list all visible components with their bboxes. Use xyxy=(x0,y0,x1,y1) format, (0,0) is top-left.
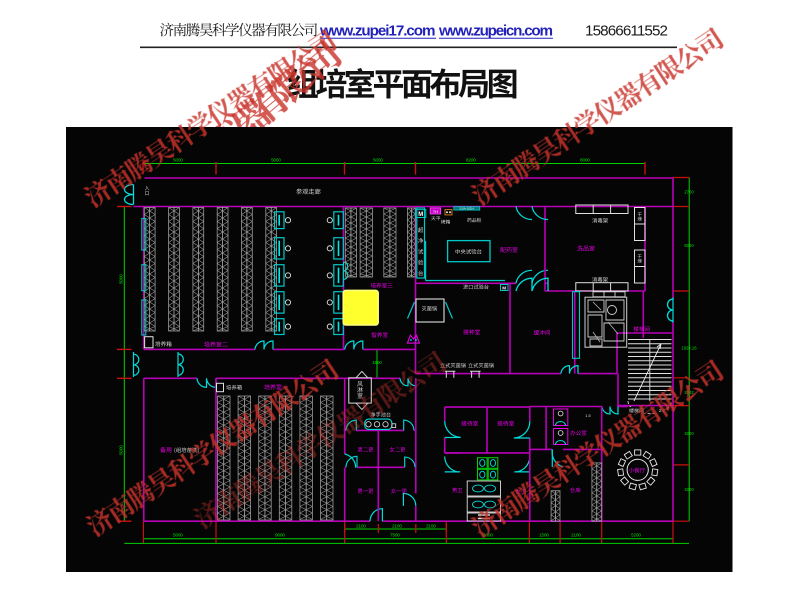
svg-text:9000: 9000 xyxy=(275,533,285,538)
svg-text:1.5: 1.5 xyxy=(585,413,591,418)
svg-text:5000: 5000 xyxy=(271,158,281,163)
svg-text:2100: 2100 xyxy=(356,524,366,529)
svg-text:www.zupeicn.com: www.zupeicn.com xyxy=(438,23,553,40)
svg-text:1500: 1500 xyxy=(539,533,549,538)
svg-text:5200: 5200 xyxy=(631,533,641,538)
svg-text:2100: 2100 xyxy=(426,524,436,529)
svg-text:2700: 2700 xyxy=(684,190,694,195)
svg-text:4000: 4000 xyxy=(684,431,694,436)
svg-text:TH: TH xyxy=(433,209,438,214)
svg-text:www.zupei17.com: www.zupei17.com xyxy=(319,23,436,40)
svg-text:2100: 2100 xyxy=(392,524,402,529)
svg-text:7500: 7500 xyxy=(390,533,400,538)
svg-text:SJIA-10DA: SJIA-10DA xyxy=(459,207,474,211)
svg-text:5000: 5000 xyxy=(173,158,183,163)
svg-text:5000: 5000 xyxy=(373,158,383,163)
svg-text:1924.16: 1924.16 xyxy=(681,346,697,351)
svg-text:5000: 5000 xyxy=(119,445,124,455)
svg-text:M: M xyxy=(418,212,423,218)
svg-text:15866611552: 15866611552 xyxy=(585,23,668,40)
svg-text:5000: 5000 xyxy=(173,533,183,538)
svg-text:2100: 2100 xyxy=(571,533,581,538)
svg-text:4000: 4000 xyxy=(684,487,694,492)
svg-text:8000: 8000 xyxy=(580,158,590,163)
svg-text:M: M xyxy=(502,285,506,290)
svg-text:5000: 5000 xyxy=(119,274,124,284)
svg-text:1500: 1500 xyxy=(372,360,382,365)
svg-text:8200: 8200 xyxy=(466,158,476,163)
svg-text:6000: 6000 xyxy=(684,243,694,248)
